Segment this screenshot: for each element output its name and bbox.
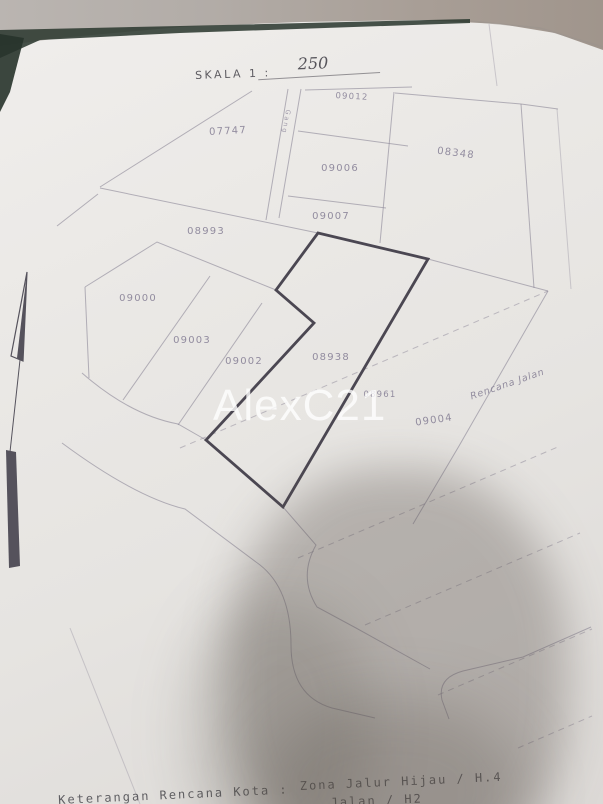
- alley-label: Gang: [280, 109, 292, 135]
- road-lines: [62, 373, 591, 804]
- parcel-labels: 07747 09012 09006 09007 08348 08993 0900…: [119, 91, 546, 428]
- parcel-label-08938: 08938: [312, 352, 350, 363]
- north-arrow-icon: [6, 272, 27, 568]
- parcel-label-09004: 09004: [415, 412, 454, 428]
- scale-value: 250: [296, 53, 328, 73]
- footer-line1-right: Zona Jalur Hijau / H.4: [300, 770, 503, 793]
- parcel-label-08348: 08348: [437, 146, 476, 162]
- footer-note: Keterangan Rencana Kota : Zona Jalur Hij…: [58, 770, 504, 804]
- watermark-text: AlexC21: [213, 381, 386, 431]
- parcel-label-08993: 08993: [187, 226, 225, 237]
- parcel-boundaries: [57, 87, 571, 524]
- parcel-label-09012: 09012: [335, 91, 369, 103]
- highlighted-parcel-outline: [206, 233, 428, 507]
- parcel-label-09000: 09000: [119, 293, 157, 304]
- parcel-label-07747: 07747: [209, 125, 247, 138]
- footer-line2: Jalan / H2: [330, 791, 423, 804]
- paper-fold-line: [489, 24, 497, 86]
- scale-underline: [258, 73, 380, 80]
- planned-road-label: Rencana Jalan: [469, 367, 546, 403]
- scale-note: SKALA 1 : 250: [194, 52, 380, 82]
- parcel-label-09006: 09006: [321, 163, 359, 174]
- parcel-label-09003: 09003: [173, 335, 211, 346]
- footer-line1-left: Keterangan Rencana Kota :: [58, 783, 289, 804]
- parcel-label-09007: 09007: [312, 211, 350, 222]
- site-plan-photo: SKALA 1 : 250: [0, 0, 603, 804]
- parcel-label-09002: 09002: [225, 356, 263, 367]
